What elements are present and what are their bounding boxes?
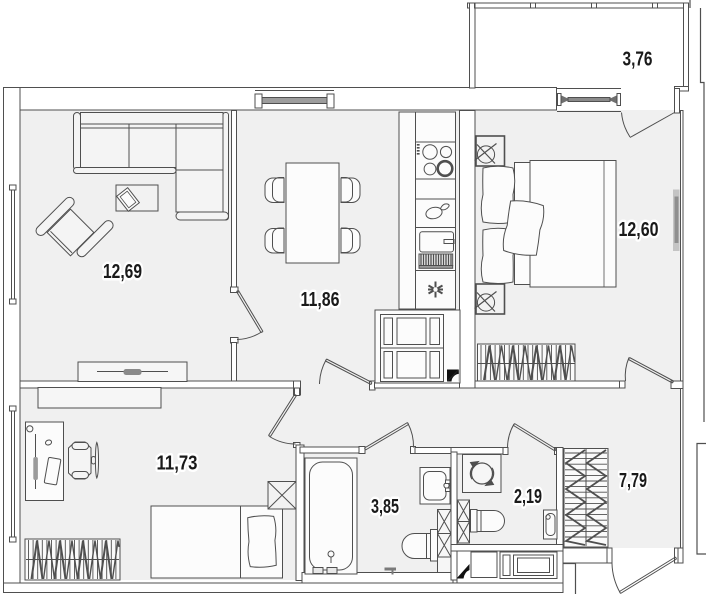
- svg-text:11,86: 11,86: [301, 289, 340, 311]
- svg-text:7,79: 7,79: [619, 470, 647, 492]
- svg-text:11,73: 11,73: [157, 453, 198, 475]
- svg-text:12,60: 12,60: [619, 219, 659, 241]
- svg-text:3,76: 3,76: [623, 49, 653, 71]
- svg-text:12,69: 12,69: [103, 261, 142, 283]
- svg-text:2,19: 2,19: [514, 486, 542, 508]
- svg-text:3,85: 3,85: [371, 496, 399, 518]
